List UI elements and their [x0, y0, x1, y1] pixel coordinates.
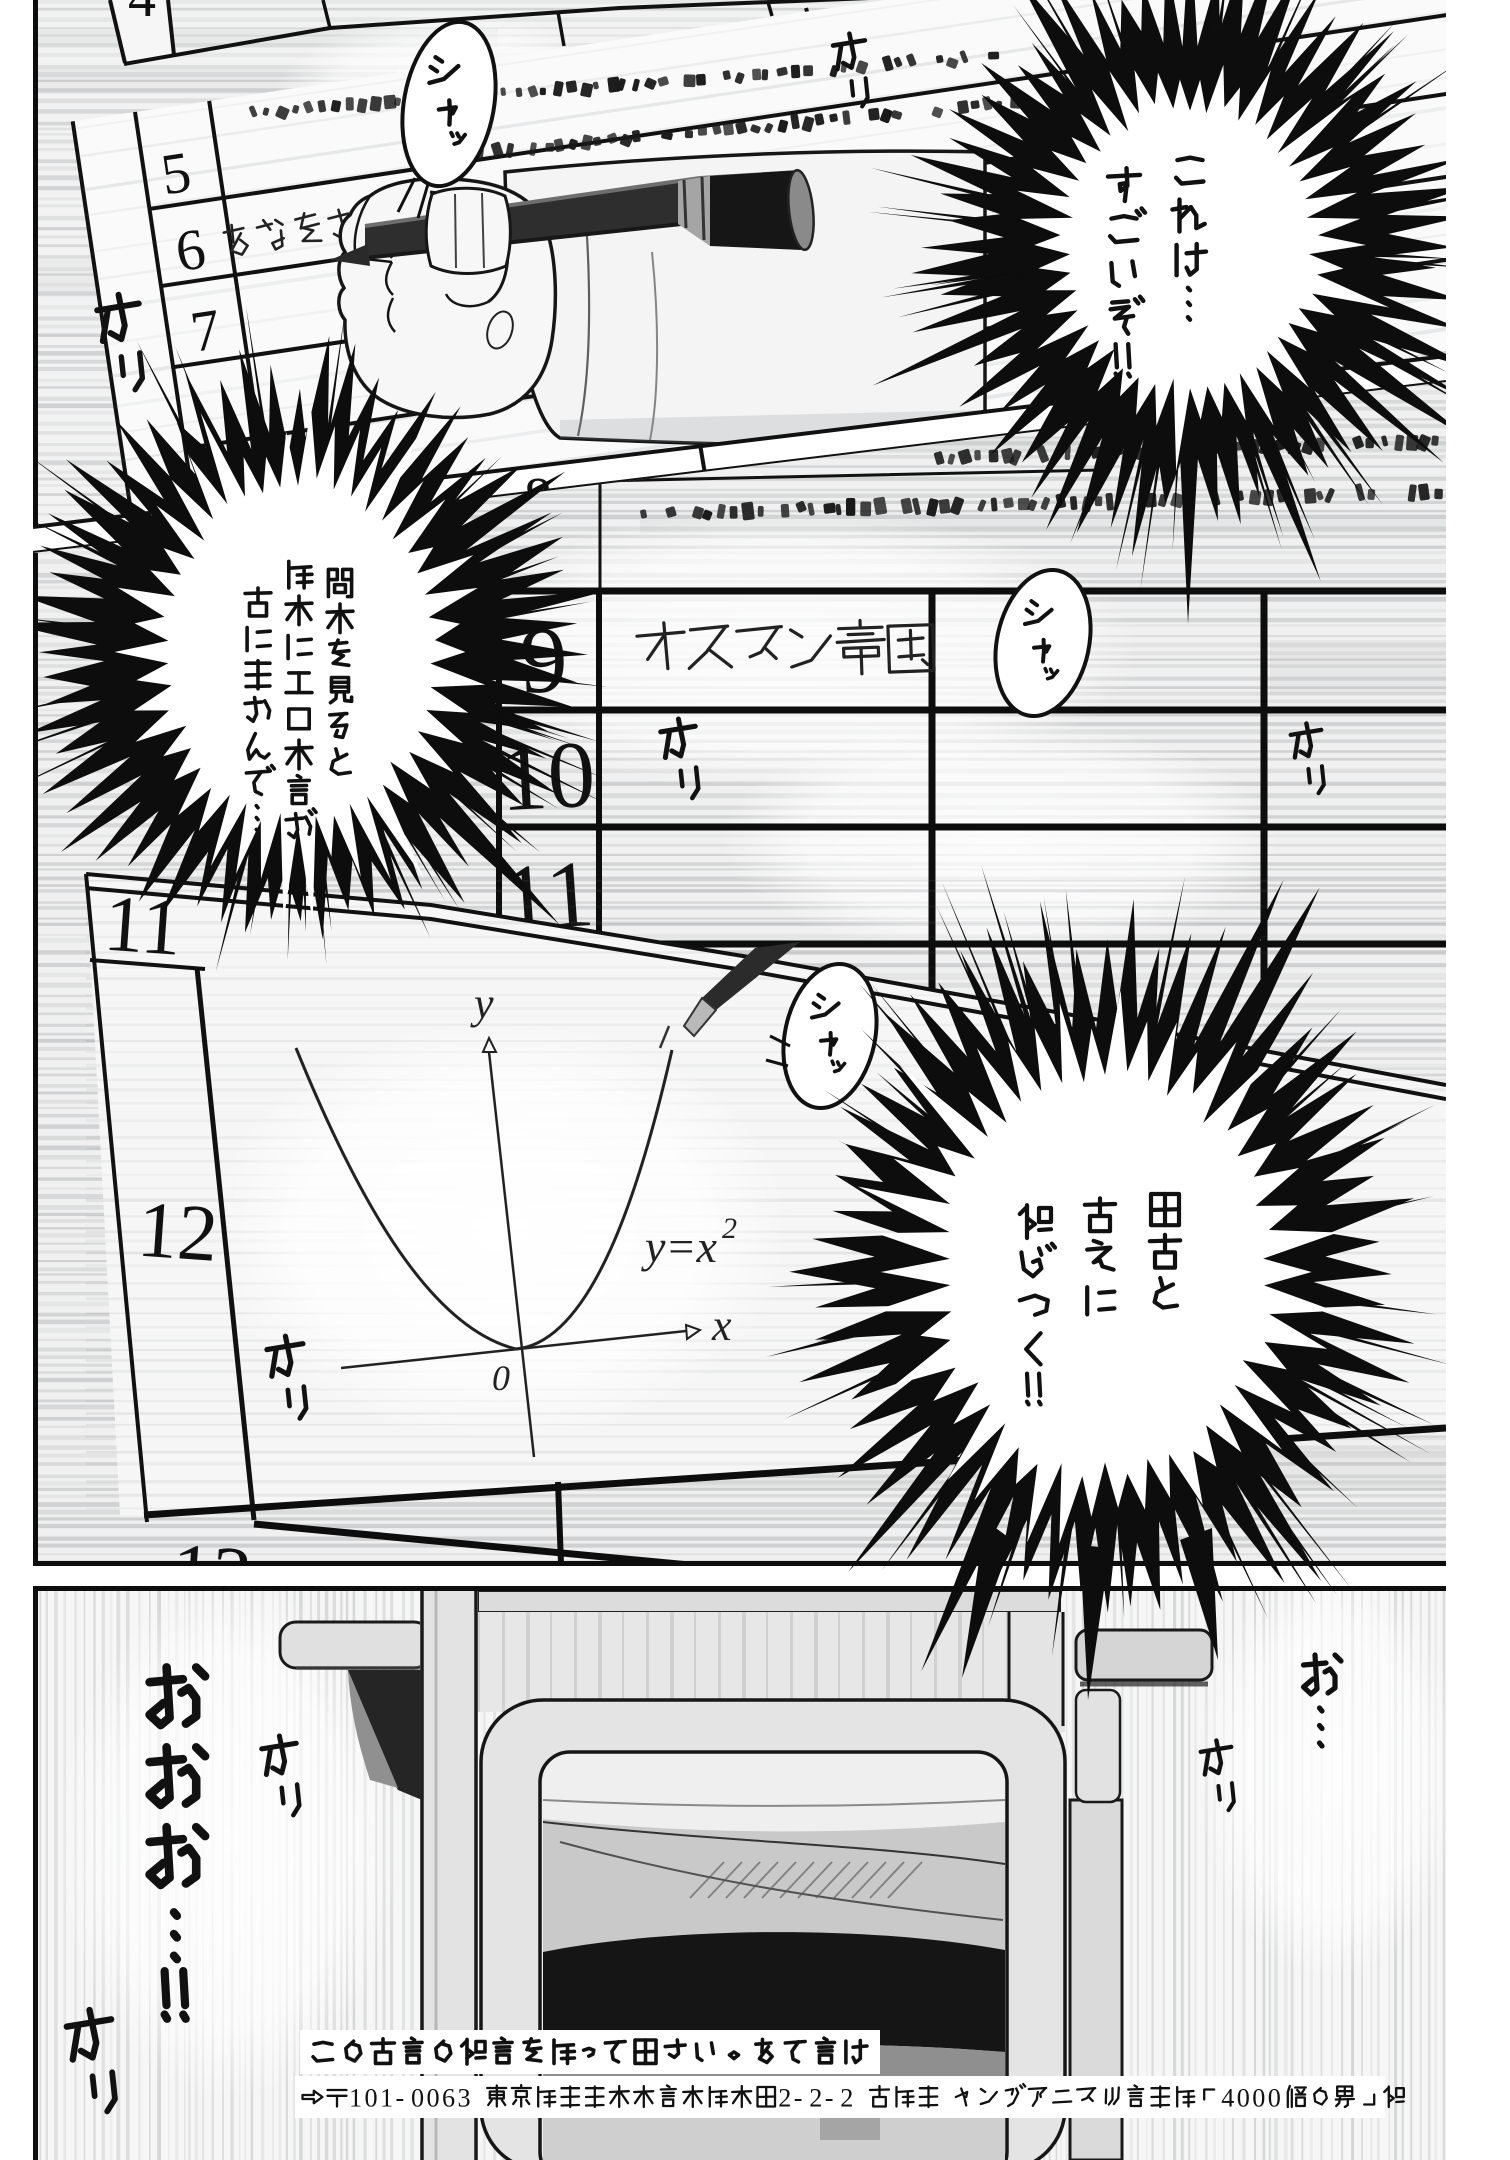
svg-text:2: 2 — [840, 2084, 853, 2113]
svg-text:4: 4 — [128, 0, 156, 29]
svg-text:1: 1 — [380, 2084, 393, 2113]
svg-text:2: 2 — [778, 2084, 791, 2113]
svg-text:y=x: y=x — [641, 1221, 717, 1272]
svg-text:-: - — [396, 2084, 405, 2113]
svg-text:0: 0 — [1252, 2084, 1265, 2113]
svg-text:0: 0 — [365, 2084, 378, 2113]
svg-text:12: 12 — [135, 1186, 221, 1279]
svg-text:1: 1 — [349, 2084, 362, 2113]
svg-text:4: 4 — [1221, 2084, 1234, 2113]
svg-text:-: - — [794, 2084, 803, 2113]
svg-text:0: 0 — [1237, 2084, 1250, 2113]
svg-text:0: 0 — [411, 2084, 424, 2113]
svg-text:0: 0 — [492, 1358, 510, 1398]
svg-text:y: y — [470, 979, 494, 1028]
svg-text:2: 2 — [809, 2084, 822, 2113]
svg-text:x: x — [711, 1301, 732, 1350]
svg-text:0: 0 — [427, 2084, 440, 2113]
svg-text:6: 6 — [442, 2084, 455, 2113]
svg-text:0: 0 — [1268, 2084, 1281, 2113]
svg-text:3: 3 — [458, 2084, 471, 2113]
svg-text:2: 2 — [722, 1212, 737, 1245]
svg-text:-: - — [825, 2084, 834, 2113]
